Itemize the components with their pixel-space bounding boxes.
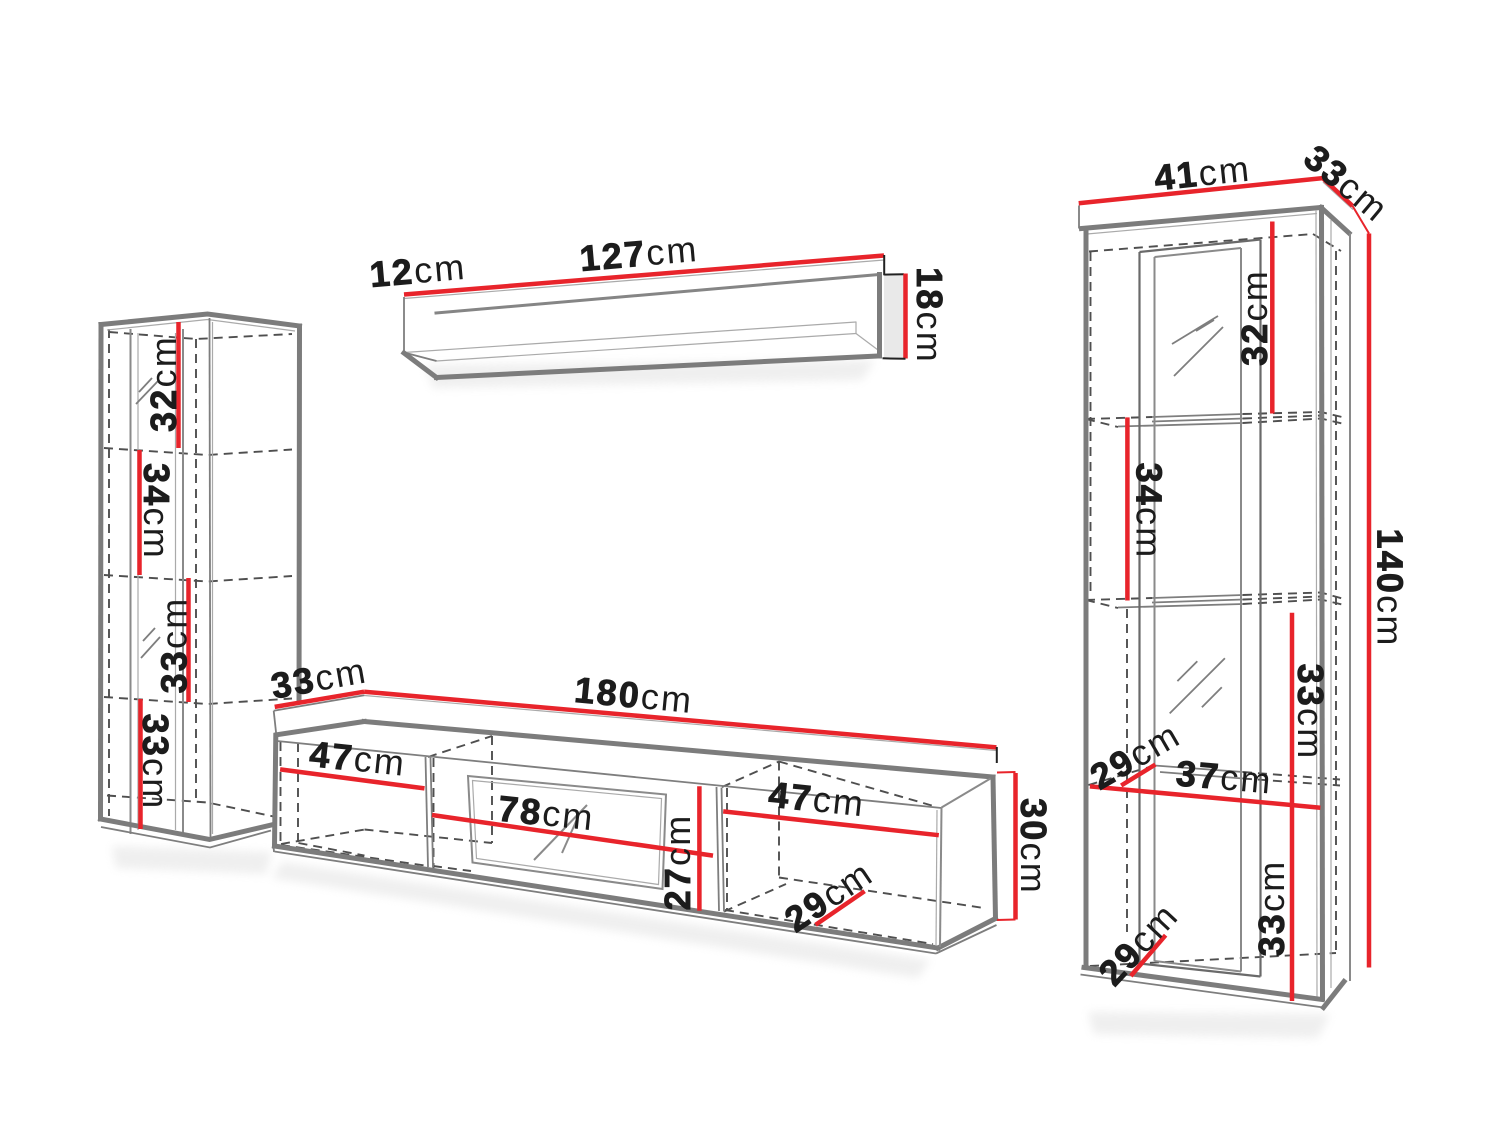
svg-text:18cm: 18cm xyxy=(909,267,950,364)
svg-text:27cm: 27cm xyxy=(657,814,698,911)
svg-text:30cm: 30cm xyxy=(1013,798,1054,895)
svg-text:33cm: 33cm xyxy=(154,597,195,694)
svg-text:33cm: 33cm xyxy=(1290,664,1331,761)
svg-text:34cm: 34cm xyxy=(136,463,177,560)
svg-text:12cm: 12cm xyxy=(368,246,468,295)
svg-text:37cm: 37cm xyxy=(1174,752,1274,801)
svg-text:32cm: 32cm xyxy=(143,335,184,432)
svg-text:33cm: 33cm xyxy=(135,714,176,811)
svg-text:33cm: 33cm xyxy=(1251,860,1292,957)
svg-text:34cm: 34cm xyxy=(1129,463,1170,560)
svg-text:140cm: 140cm xyxy=(1370,528,1411,647)
svg-text:32cm: 32cm xyxy=(1234,269,1275,366)
